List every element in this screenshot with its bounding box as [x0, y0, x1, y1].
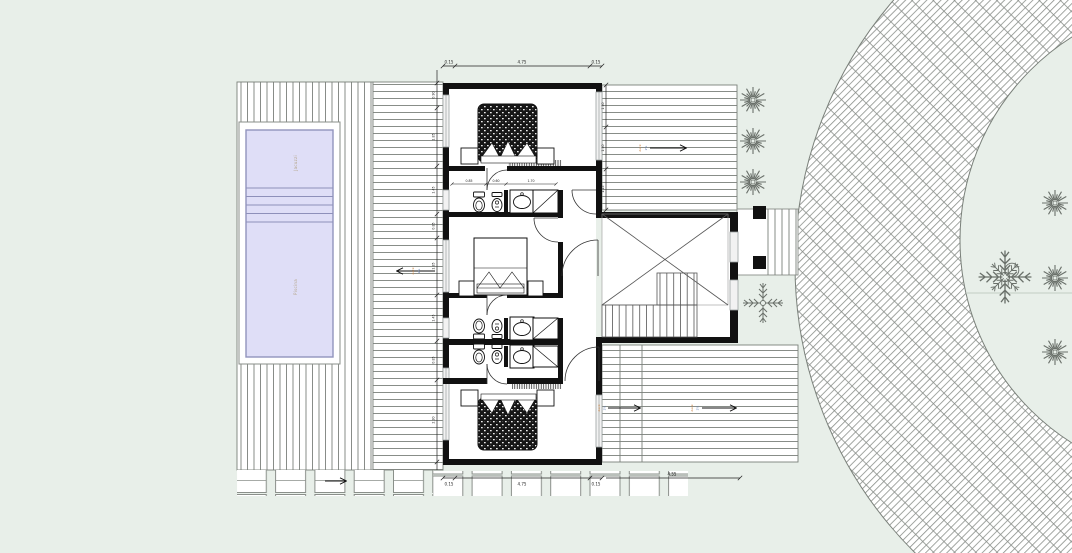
svg-text:deck: deck	[411, 267, 415, 274]
deck-south	[602, 345, 798, 462]
nightstand	[537, 148, 554, 164]
sink	[510, 190, 534, 213]
svg-text:2%: 2%	[603, 405, 607, 410]
pool: Jacuzzi Piscina	[239, 122, 340, 364]
stair-flight-lower	[602, 305, 697, 337]
dim-label: 1.45	[432, 314, 436, 321]
toilet	[474, 344, 485, 364]
pool-upper-label: Jacuzzi	[293, 155, 298, 172]
shower	[533, 318, 558, 339]
sink	[510, 345, 534, 368]
dim-label: 1.70	[527, 179, 534, 183]
dim-label: 4.75	[518, 60, 527, 65]
bidet	[492, 193, 502, 212]
bridge-column	[753, 256, 766, 269]
dim-label: 1.50	[601, 102, 605, 109]
dim-label: 1.85	[432, 133, 436, 140]
nightstand	[528, 281, 543, 296]
nightstand	[461, 390, 478, 406]
dim-label: 0.90	[432, 91, 436, 98]
dim-label: 0.15	[445, 482, 454, 487]
shower	[533, 190, 558, 213]
entry-bridge	[737, 206, 798, 275]
svg-text:2%: 2%	[417, 268, 421, 273]
dim-label: 1.15	[601, 185, 605, 192]
dim-label: 4.55	[668, 472, 677, 477]
dim-label: 1.85	[432, 262, 436, 269]
shower	[533, 346, 558, 367]
stones-east	[433, 471, 688, 496]
closet-rail	[512, 383, 562, 389]
stair-flight-upper	[657, 273, 697, 305]
dim-label: 1.50	[601, 144, 605, 151]
nightstand	[459, 281, 474, 296]
dim-label: 0.85	[465, 179, 472, 183]
dim-label: 2.30	[432, 416, 436, 423]
svg-text:deck: deck	[597, 404, 601, 411]
nightstand	[537, 390, 554, 406]
dim-label: 0.15	[592, 482, 601, 487]
dim-label: 4.75	[518, 482, 527, 487]
bidet	[492, 320, 502, 339]
dim-label: 0.85	[432, 356, 436, 363]
bed-light	[474, 238, 527, 295]
dim-label: 0.60	[492, 179, 499, 183]
svg-text:deck: deck	[690, 404, 694, 411]
nightstand	[461, 148, 478, 164]
dim-label: 0.85	[432, 222, 436, 229]
stones-west	[237, 470, 433, 496]
svg-text:deck: deck	[638, 144, 642, 151]
floor-plan-canvas: Jacuzzi Piscina	[0, 0, 1072, 553]
sink	[510, 317, 534, 340]
dim-label: 0.15	[592, 60, 601, 65]
svg-text:2%: 2%	[644, 145, 648, 150]
stepping-stones	[237, 470, 688, 496]
dim-label: 0.15	[445, 60, 454, 65]
pool-water	[246, 130, 333, 357]
svg-text:2%: 2%	[696, 405, 700, 410]
pool-lower-label: Piscina	[293, 279, 298, 295]
bridge-column	[753, 206, 766, 219]
toilet	[474, 192, 485, 212]
dim-label: 1.45	[432, 186, 436, 193]
site-plan-svg: Jacuzzi Piscina	[0, 0, 1072, 553]
toilet	[474, 319, 485, 339]
bidet	[492, 345, 502, 364]
